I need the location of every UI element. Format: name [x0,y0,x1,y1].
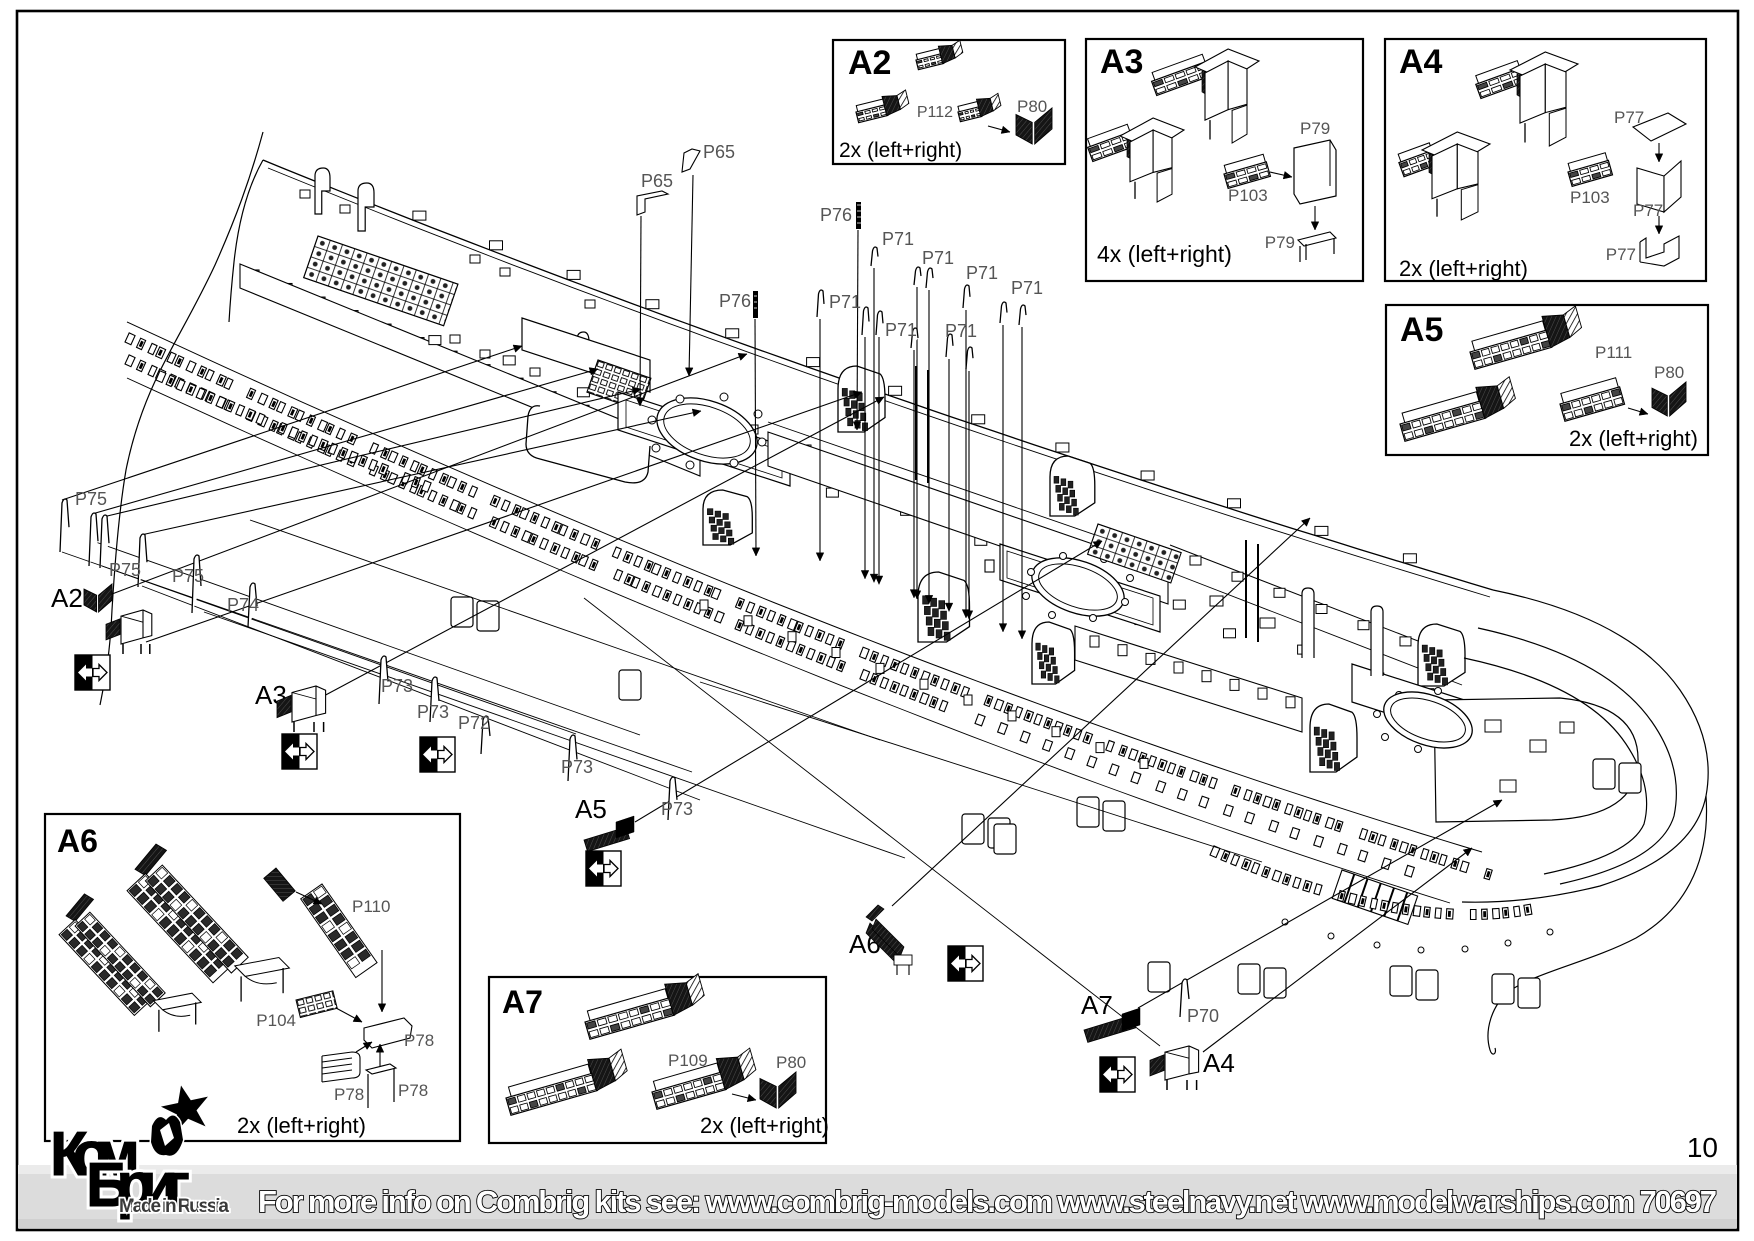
svg-text:P75: P75 [172,566,204,586]
svg-text:A6: A6 [57,823,98,859]
svg-text:P80: P80 [1017,97,1047,116]
svg-text:P111: P111 [1595,343,1632,362]
svg-text:P71: P71 [885,320,917,340]
svg-text:P78: P78 [404,1031,434,1050]
svg-text:A3: A3 [1100,43,1143,81]
svg-text:P76: P76 [719,291,751,311]
svg-text:A2: A2 [51,583,83,613]
svg-text:A2: A2 [848,44,891,82]
svg-text:P71: P71 [922,248,954,268]
svg-text:P80: P80 [776,1053,806,1072]
svg-text:P76: P76 [820,205,852,225]
svg-text:A4: A4 [1203,1048,1235,1078]
svg-text:A5: A5 [575,794,607,824]
svg-text:P112: P112 [917,104,953,121]
svg-text:A5: A5 [1400,311,1443,349]
svg-text:P65: P65 [703,142,735,162]
svg-text:P65: P65 [641,171,673,191]
svg-text:P79: P79 [1300,119,1330,138]
svg-text:P70: P70 [1187,1006,1219,1026]
svg-text:Made in Russia: Made in Russia [119,1196,229,1217]
svg-text:P71: P71 [829,292,861,312]
svg-text:P75: P75 [109,560,141,580]
svg-text:P109: P109 [668,1051,708,1070]
svg-text:P78: P78 [398,1081,428,1100]
svg-text:P73: P73 [561,757,593,777]
svg-text:A4: A4 [1399,43,1443,81]
svg-text:P103: P103 [1570,188,1610,207]
svg-text:P73: P73 [381,676,413,696]
svg-text:P71: P71 [966,263,998,283]
svg-text:For more info on Combrig kits: For more info on Combrig kits see: www.c… [258,1184,1717,1219]
svg-text:2x (left+right): 2x (left+right) [237,1113,366,1138]
svg-text:P71: P71 [945,321,977,341]
svg-text:10: 10 [1687,1132,1718,1163]
svg-text:P77: P77 [1606,245,1636,264]
svg-text:P71: P71 [1011,278,1043,298]
svg-text:P72: P72 [458,713,490,733]
svg-text:P104: P104 [256,1011,296,1030]
svg-text:P73: P73 [661,799,693,819]
svg-text:2x (left+right): 2x (left+right) [1399,256,1528,281]
svg-text:P79: P79 [1265,233,1295,252]
svg-text:4x (left+right): 4x (left+right) [1097,241,1232,267]
svg-text:2x (left+right): 2x (left+right) [839,139,962,162]
svg-text:P110: P110 [352,897,390,916]
svg-text:2x (left+right): 2x (left+right) [700,1113,829,1138]
svg-text:P78: P78 [334,1085,364,1104]
svg-text:P74: P74 [227,595,259,615]
svg-text:A7: A7 [502,984,543,1020]
svg-text:P103: P103 [1228,186,1268,205]
svg-text:A7: A7 [1081,990,1113,1020]
svg-text:P73: P73 [417,702,449,722]
svg-text:P80: P80 [1654,363,1684,382]
svg-text:P75: P75 [75,489,107,509]
svg-text:2x (left+right): 2x (left+right) [1569,426,1698,451]
svg-text:P71: P71 [882,229,914,249]
